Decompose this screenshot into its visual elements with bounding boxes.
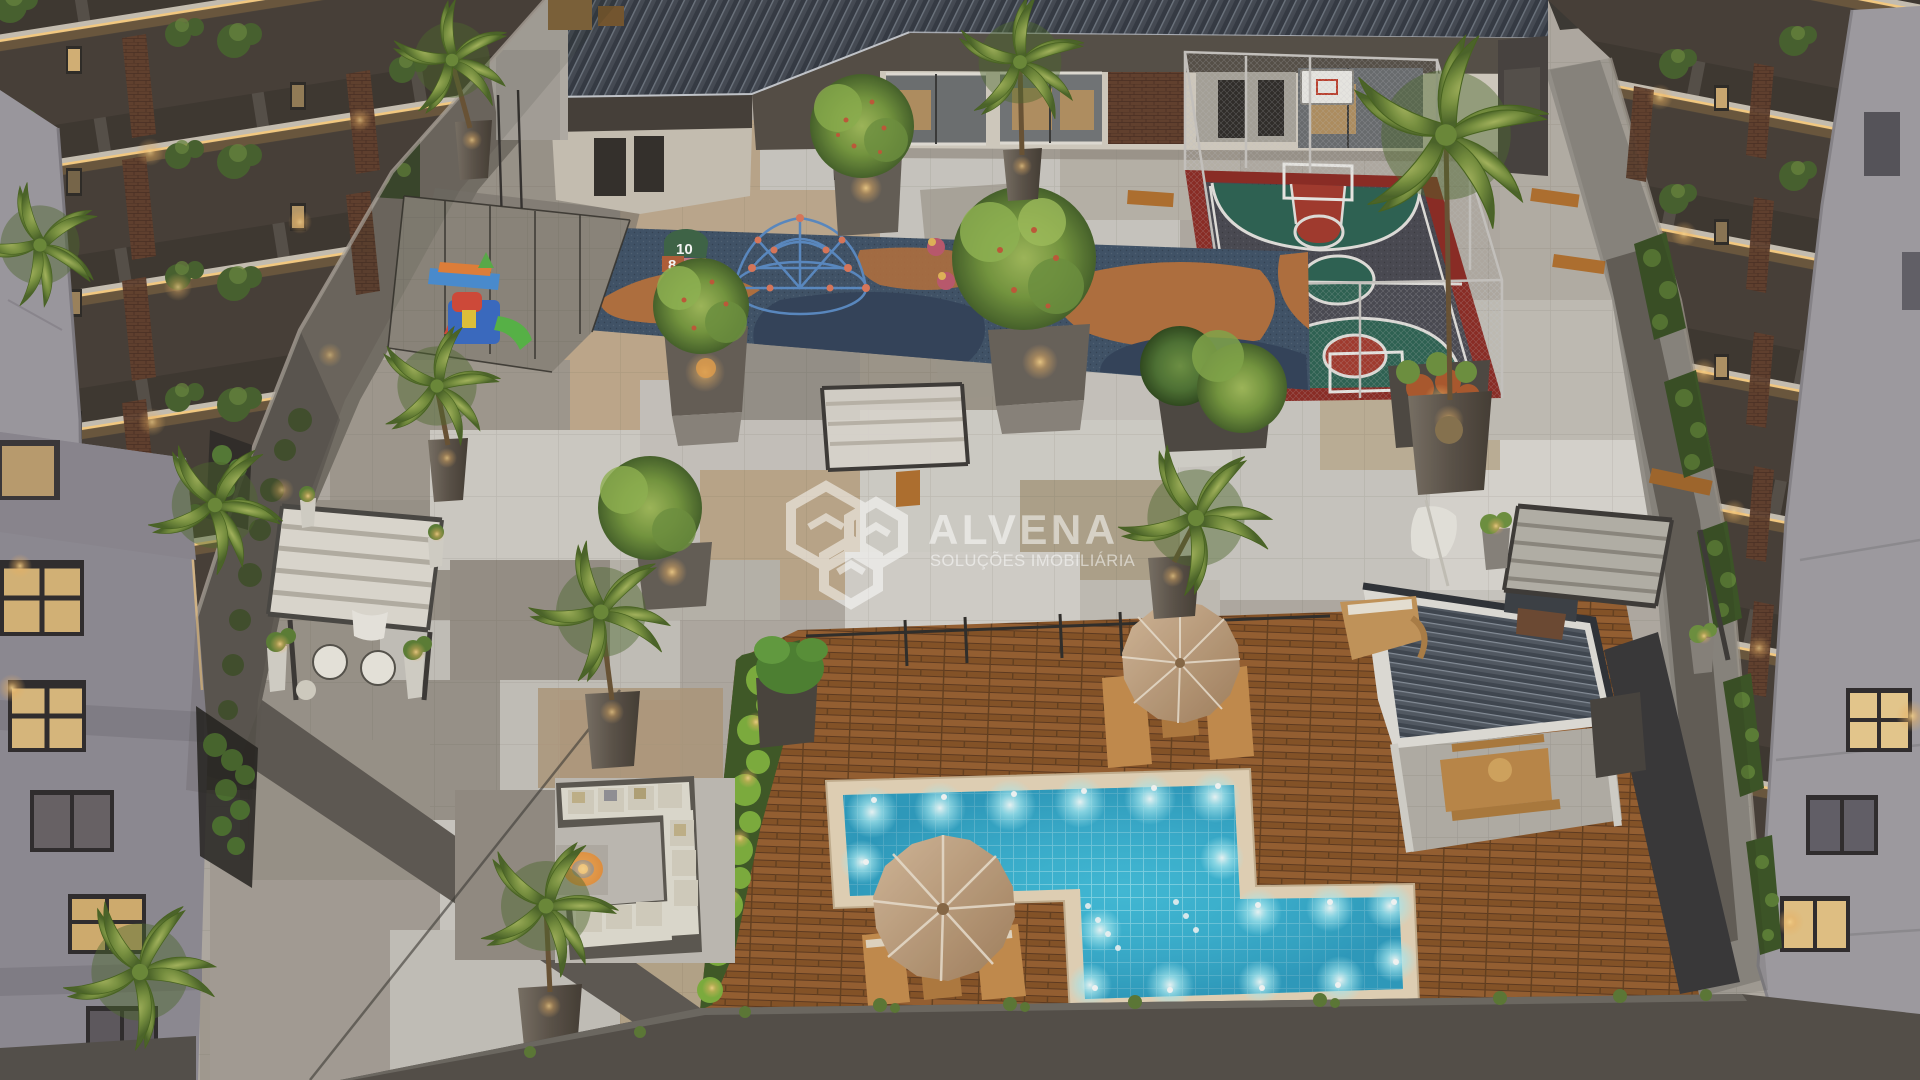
- svg-text:SOLUÇÕES IMOBILIÁRIA: SOLUÇÕES IMOBILIÁRIA: [930, 550, 1135, 570]
- svg-text:ALVENA: ALVENA: [928, 506, 1119, 553]
